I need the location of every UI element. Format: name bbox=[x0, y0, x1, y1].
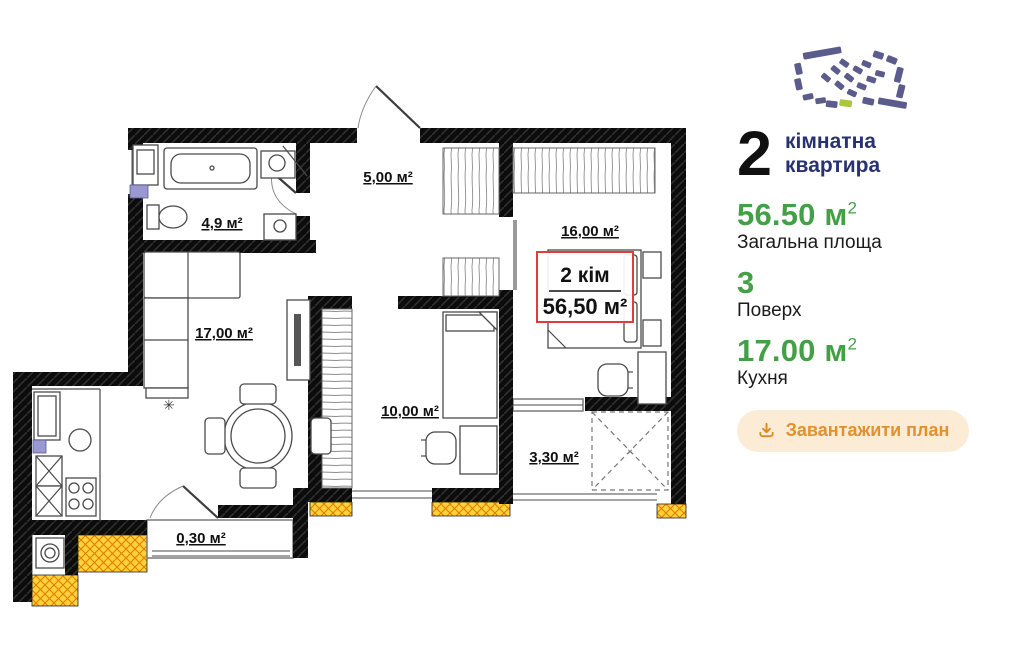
apartment-stats: 56.50 м2 Загальна площа 3 Поверх 17.00 м… bbox=[737, 199, 969, 390]
room-label-loggia: 3,30 м² bbox=[529, 449, 578, 466]
bedroom-small-furniture bbox=[421, 312, 497, 474]
apartment-title: 2 кімнатна квартира bbox=[737, 126, 969, 183]
site-plan-minimap-icon bbox=[789, 40, 915, 122]
room-label-bedroom-small: 10,00 м² bbox=[381, 403, 439, 420]
stat-kitchen-value: 17.00 м bbox=[737, 333, 848, 368]
stat-kitchen-sup: 2 bbox=[848, 334, 858, 353]
plan-total-badge: 2 кім 56,50 м² bbox=[537, 252, 633, 322]
stat-total-area: 56.50 м2 Загальна площа bbox=[737, 199, 969, 254]
rooms-count: 2 bbox=[737, 126, 772, 183]
stat-floor: 3 Поверх bbox=[737, 267, 969, 322]
minimap-current-unit bbox=[839, 99, 852, 107]
door-leaf-bedroom bbox=[513, 220, 517, 290]
stat-kitchen-label: Кухня bbox=[737, 368, 969, 390]
badge-area: 56,50 м² bbox=[543, 294, 628, 319]
download-icon bbox=[757, 421, 776, 440]
badge-rooms: 2 кім bbox=[560, 264, 609, 287]
room-label-bedroom-large: 16,00 м² bbox=[561, 223, 619, 240]
extractor-symbol: ✳ bbox=[163, 397, 175, 413]
room-label-hallway: 5,00 м² bbox=[363, 169, 412, 186]
download-plan-button[interactable]: Завантажити план bbox=[737, 410, 969, 452]
stat-floor-label: Поверх bbox=[737, 300, 969, 322]
windows bbox=[128, 150, 657, 556]
apartment-type-label: кімнатна квартира bbox=[785, 130, 969, 178]
stat-floor-value: 3 bbox=[737, 265, 754, 300]
stat-total-area-value: 56.50 м bbox=[737, 197, 848, 232]
floor-plan: ✳ bbox=[0, 0, 710, 650]
room-label-living: 17,00 м² bbox=[195, 325, 253, 342]
stat-total-area-sup: 2 bbox=[848, 198, 858, 217]
vent-shaft-kitchen bbox=[33, 440, 46, 453]
room-label-bathroom: 4,9 м² bbox=[201, 215, 242, 232]
apartment-info-panel: 2 кімнатна квартира 56.50 м2 Загальна пл… bbox=[737, 40, 969, 452]
washing-machine bbox=[36, 538, 64, 568]
shaft-mark: × bbox=[627, 447, 633, 458]
insulation-strips bbox=[16, 502, 686, 606]
kitchen-fixtures bbox=[32, 389, 100, 520]
floor-plan-area: ✳ bbox=[0, 0, 710, 650]
living-room-furniture: ✳ bbox=[144, 252, 331, 488]
stat-total-area-label: Загальна площа bbox=[737, 232, 969, 254]
stat-kitchen-area: 17.00 м2 Кухня bbox=[737, 335, 969, 390]
room-label-balcony-small: 0,30 м² bbox=[176, 530, 225, 547]
download-button-label: Завантажити план bbox=[786, 420, 950, 441]
vent-shaft bbox=[130, 185, 148, 198]
